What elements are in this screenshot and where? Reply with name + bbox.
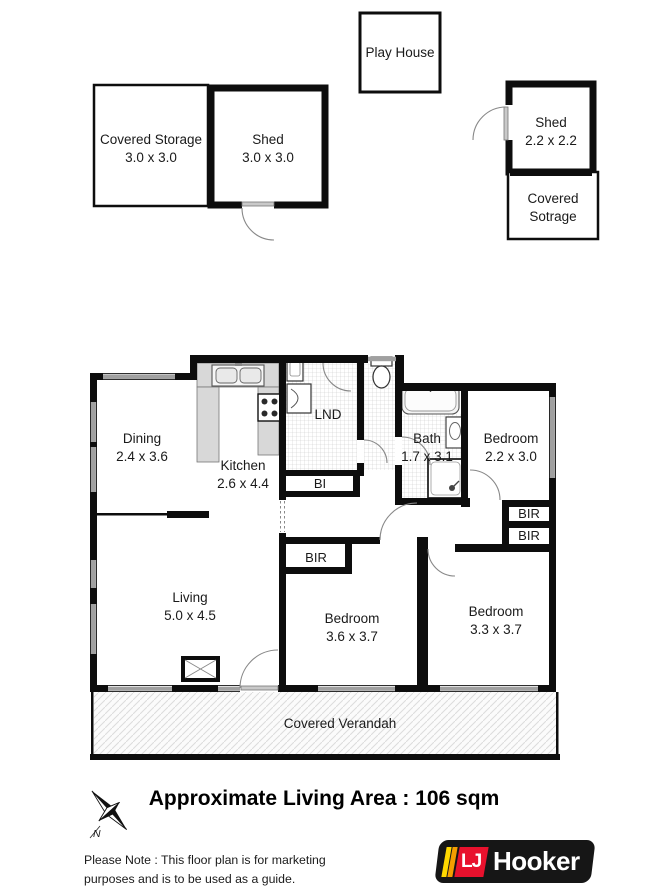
living-door [241,686,278,690]
shed-large-door-swing [242,208,274,240]
living-area-title: Approximate Living Area : 106 sqm [0,787,648,811]
shower [428,459,463,498]
living-label: Living [172,590,207,605]
fireplace [183,658,218,680]
toilet-icon [371,357,392,388]
covered-sotrage-label-1: Covered [527,191,578,206]
bedroom-small-door-swing [470,470,500,500]
compass-north-label: N [93,828,101,840]
covered-sotrage-label-2: Sotrage [529,209,576,224]
disclaimer-line-2: purposes and is to be used as a guide. [84,870,326,889]
kitchen-sink [212,362,264,386]
stove [258,394,281,421]
bedroom-small-label: Bedroom [484,431,539,446]
floor-plan-page: Play House Covered Storage 3.0 x 3.0 She… [0,0,672,896]
logo-lj-text: LJ [461,851,481,873]
outbuilding-covered-sotrage: Covered Sotrage [508,170,598,239]
cased-opening [281,501,285,532]
washing-machine [287,384,311,413]
logo-lj-box: LJ [454,847,488,877]
outbuilding-shed-large: Shed 3.0 x 3.0 [211,88,325,240]
verandah-label: Covered Verandah [284,716,397,731]
shed-large-door [242,202,274,206]
laundry-label: LND [314,407,341,422]
kitchen-size: 2.6 x 4.4 [217,476,269,491]
bir-closet-label-2: BIR [518,528,540,543]
dining-label: Dining [123,431,161,446]
covered-storage-size: 3.0 x 3.0 [125,150,177,165]
bath-label: Bath [413,431,441,446]
lj-hooker-logo-inner: LJ Hooker [437,846,580,877]
bedroom-small-size: 2.2 x 3.0 [485,449,537,464]
outbuilding-play-house: Play House [360,13,440,92]
bedroom-middle-label: Bedroom [325,611,380,626]
bir-closet-label-3: BIR [305,550,327,565]
covered-storage-label: Covered Storage [100,132,202,147]
bedroom-middle-size: 3.6 x 3.7 [326,629,378,644]
bi-closet-label: BI [314,476,326,491]
living-size: 5.0 x 4.5 [164,608,216,623]
logo-brand-text: Hooker [493,846,580,877]
lj-hooker-logo: LJ Hooker [434,840,595,883]
outbuilding-covered-storage: Covered Storage 3.0 x 3.0 [94,85,208,206]
bath-size: 1.7 x 3.1 [401,449,453,464]
shed-small-size: 2.2 x 2.2 [525,133,577,148]
shed-small-door-swing [473,107,506,140]
bedroom-middle-door-swing [380,503,417,540]
kitchen-label: Kitchen [220,458,265,473]
shed-small-label: Shed [535,115,567,130]
disclaimer-note: Please Note : This floor plan is for mar… [84,851,326,888]
shed-large-label: Shed [252,132,284,147]
play-house-label: Play House [365,45,434,60]
bedroom-right-label: Bedroom [469,604,524,619]
bedroom-right-door-swing [428,549,455,576]
shed-large-size: 3.0 x 3.0 [242,150,294,165]
shed-small-door [504,107,508,140]
bedroom-right-size: 3.3 x 3.7 [470,622,522,637]
dining-size: 2.4 x 3.6 [116,449,168,464]
living-door-swing [240,650,278,688]
floor-plan-drawing: Play House Covered Storage 3.0 x 3.0 She… [0,0,672,896]
disclaimer-line-1: Please Note : This floor plan is for mar… [84,851,326,870]
bir-closet-label-1: BIR [518,506,540,521]
outbuilding-shed-small: Shed 2.2 x 2.2 [473,84,593,172]
